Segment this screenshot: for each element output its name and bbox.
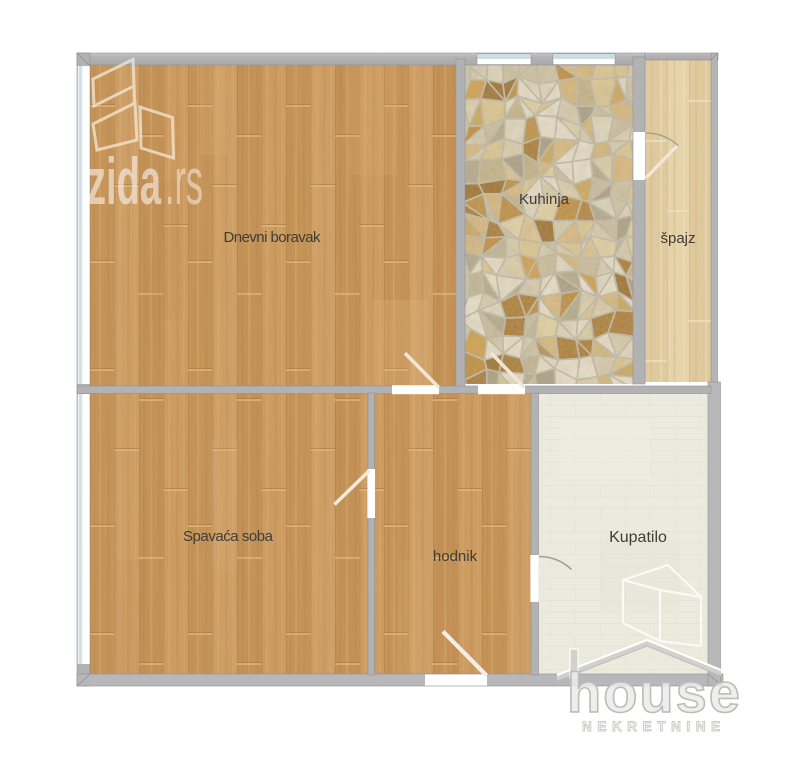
svg-text:Kuhinja: Kuhinja [519,191,570,208]
svg-text:hodnik: hodnik [433,548,478,565]
svg-text:Spavaća soba: Spavaća soba [183,528,274,545]
svg-text:.rs: .rs [165,144,203,218]
svg-text:Kupatilo: Kupatilo [609,529,667,546]
svg-text:špajz: špajz [660,230,695,247]
svg-text:Dnevni boravak: Dnevni boravak [224,229,322,246]
svg-text:house: house [567,661,742,724]
svg-text:zida: zida [87,144,162,218]
svg-text:NEKRETNINE: NEKRETNINE [582,719,726,734]
